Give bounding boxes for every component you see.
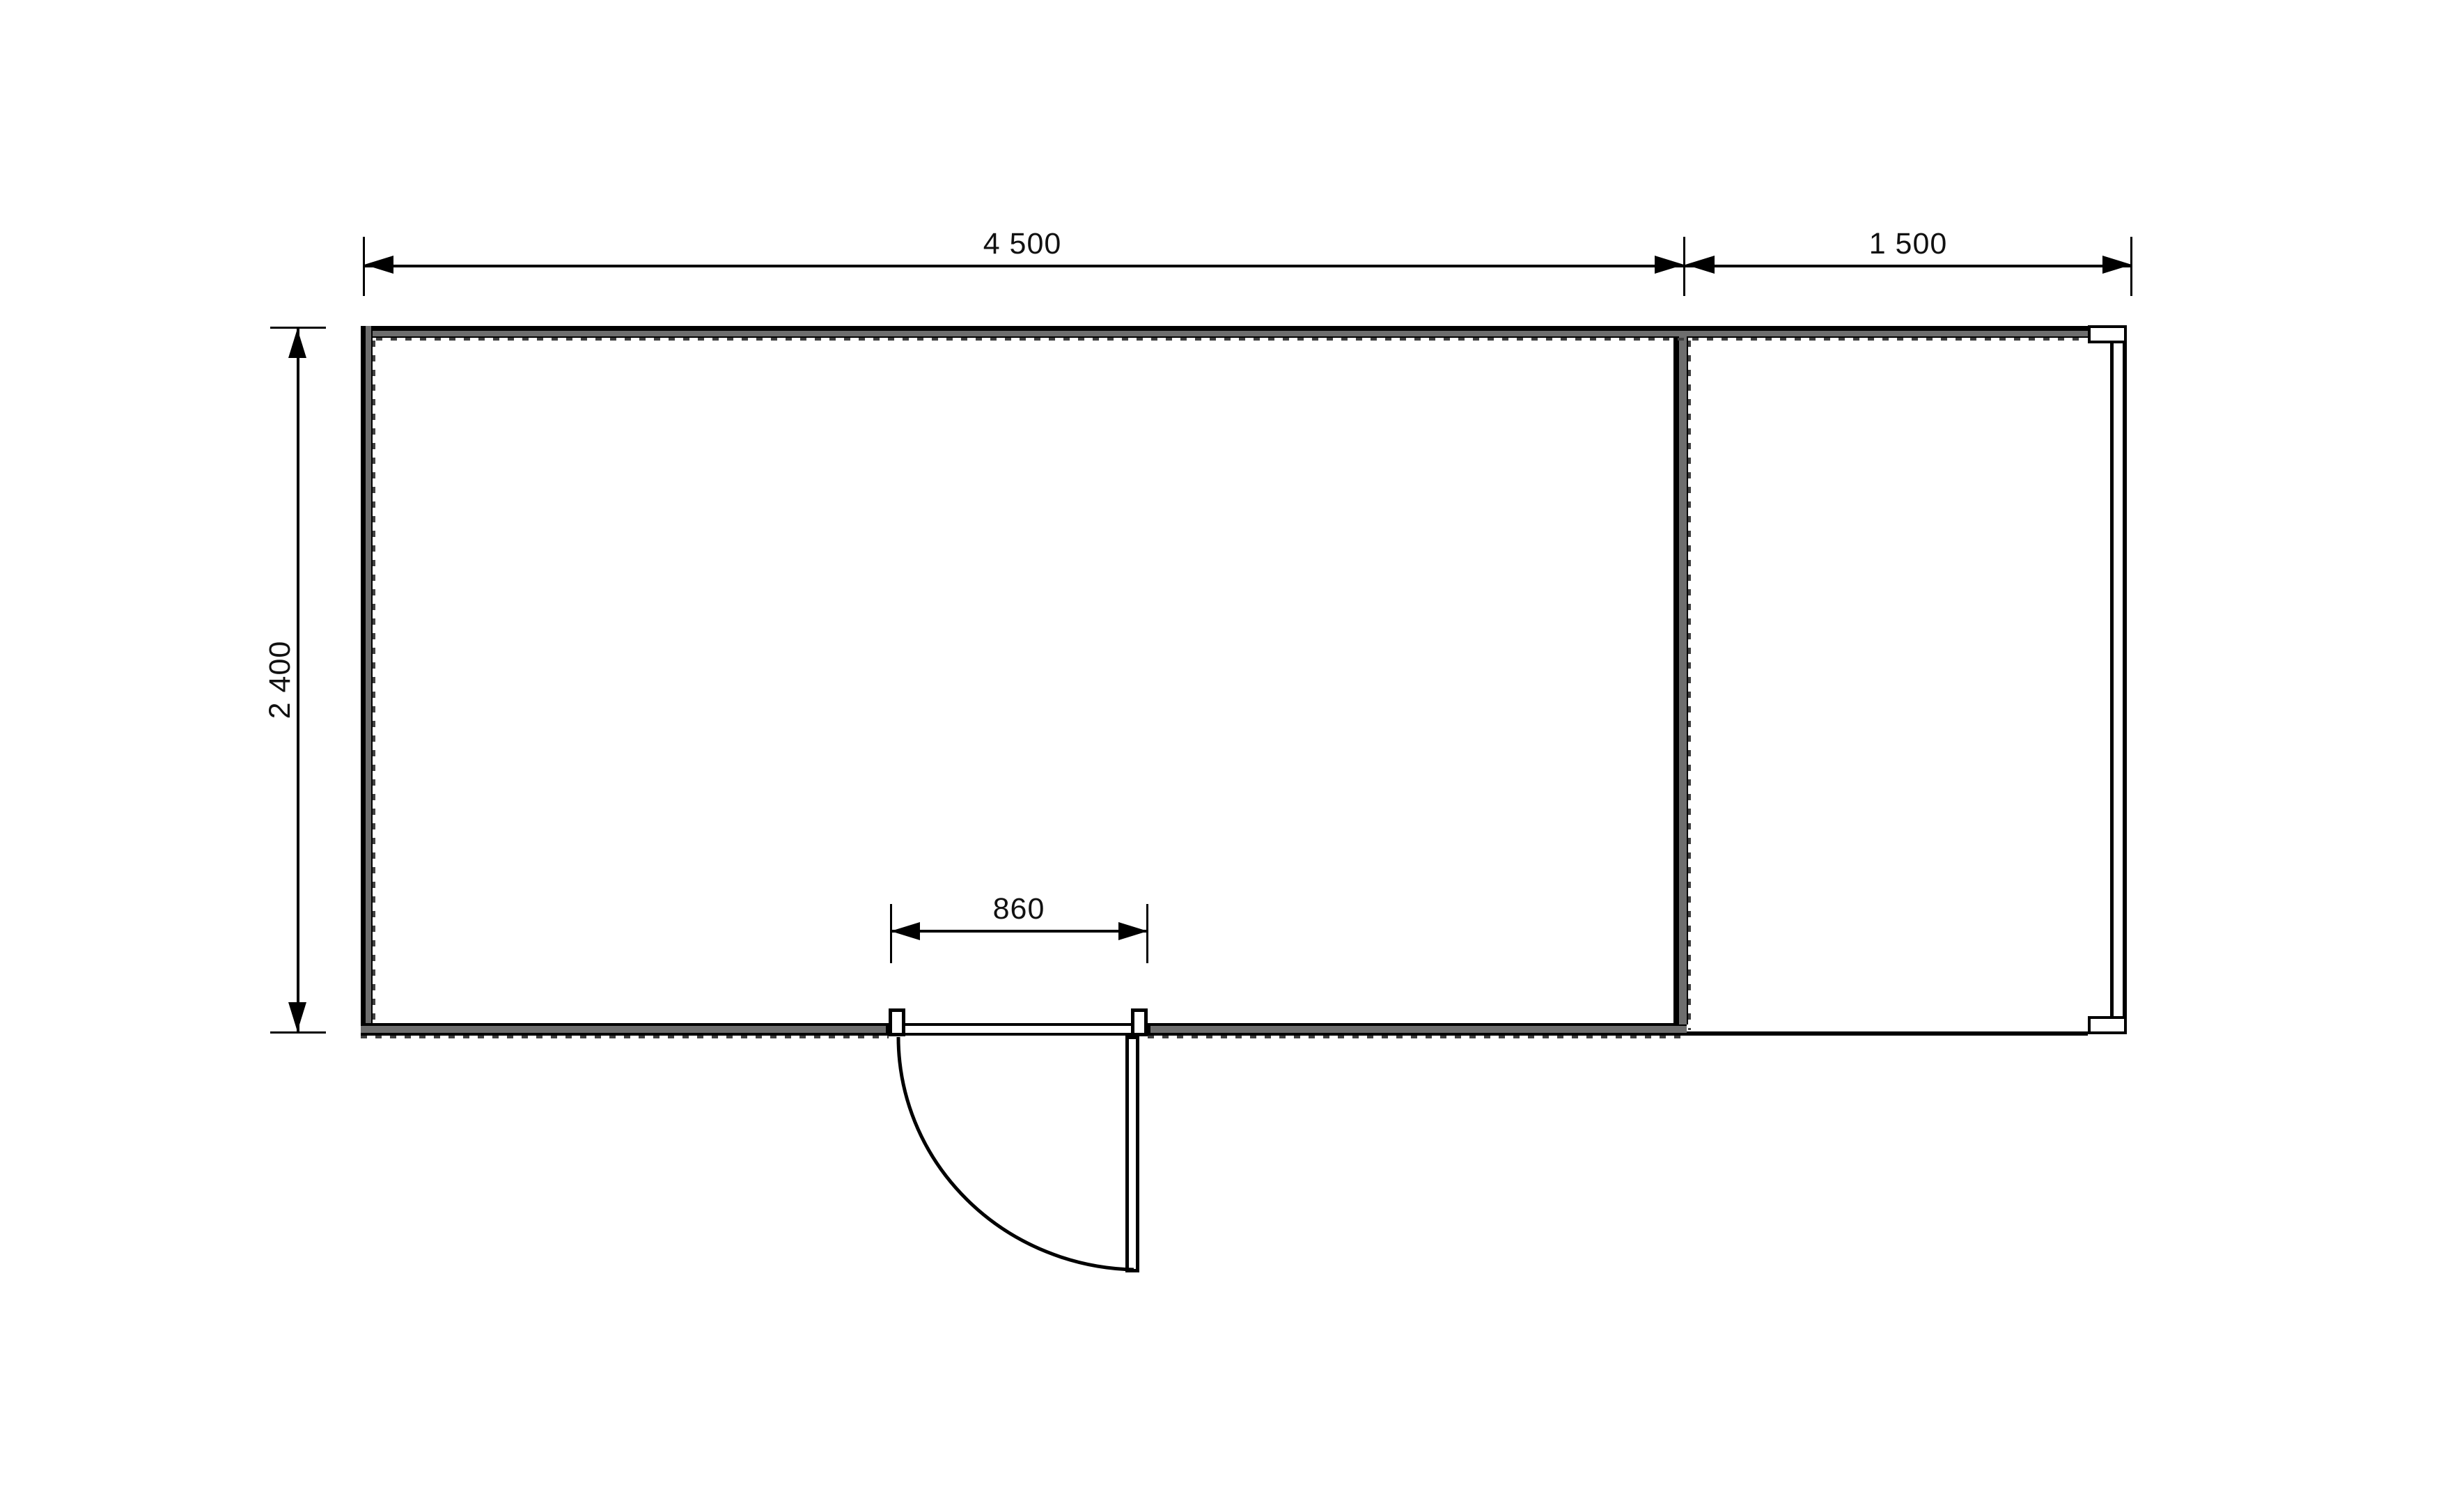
- wall-bottom-right-segment: [1148, 1023, 1687, 1036]
- floor-plan-canvas: 4 500 1 500 2 400 860: [0, 0, 2443, 1512]
- door-leaf: [1125, 1036, 1139, 1272]
- dim-left-extension-bottom: [270, 1031, 326, 1034]
- dim-arrow-4500-left: [364, 256, 393, 274]
- dim-label-door-width: 860: [949, 894, 1088, 924]
- wall-left: [361, 326, 373, 1036]
- dim-arrow-1500-left: [1685, 256, 1715, 274]
- dim-arrow-2400-bottom: [288, 1002, 306, 1031]
- dim-left-line: [297, 327, 299, 1033]
- dim-label-depth: 2 400: [265, 610, 295, 749]
- dim-door-line: [891, 930, 1148, 933]
- insulation-dash-divider-wall: [1688, 341, 1691, 1030]
- insulation-dash-bottom-wall-right: [1148, 1036, 1687, 1038]
- door-jamb-left: [889, 1008, 905, 1036]
- dim-arrow-860-right: [1118, 922, 1148, 940]
- wall-bottom-left-segment: [361, 1023, 889, 1036]
- dim-arrow-4500-right: [1655, 256, 1684, 274]
- dim-label-terrace-width: 1 500: [1839, 228, 1978, 259]
- dim-arrow-1500-right: [2102, 256, 2132, 274]
- wall-top: [361, 326, 2088, 338]
- terrace-right-wall-inner-line: [2110, 338, 2114, 1020]
- terrace-corner-post-bottom: [2088, 1016, 2127, 1034]
- insulation-dash-left-wall: [373, 341, 375, 1023]
- dim-arrow-2400-top: [288, 329, 306, 358]
- terrace-corner-post-top: [2088, 325, 2127, 343]
- dim-top-line: [364, 265, 2132, 267]
- terrace-bottom-edge: [1687, 1031, 2088, 1036]
- terrace-right-wall-outer-line: [2123, 338, 2127, 1020]
- insulation-dash-top-wall: [376, 338, 2086, 341]
- insulation-dash-bottom-wall-left: [361, 1036, 889, 1038]
- dim-arrow-860-left: [891, 922, 920, 940]
- dim-label-main-width: 4 500: [953, 228, 1092, 259]
- door-threshold: [905, 1023, 1131, 1036]
- wall-divider: [1673, 336, 1688, 1024]
- door-jamb-right: [1131, 1008, 1148, 1036]
